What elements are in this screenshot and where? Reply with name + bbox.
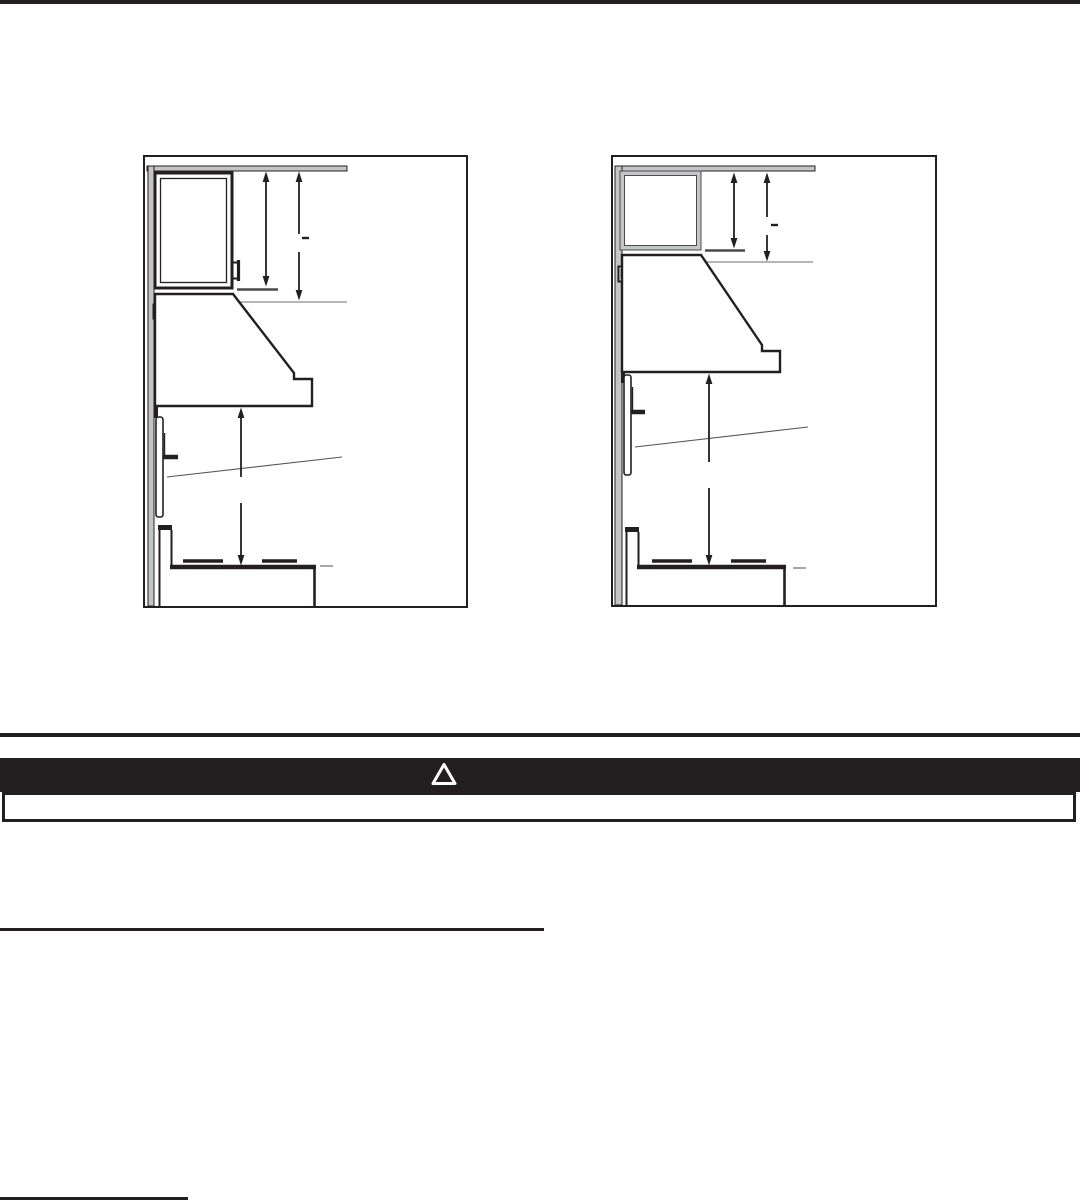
ceiling-section [615,166,815,171]
leader-line [635,427,808,447]
wall-cabinet [620,171,701,250]
dimension-arrow-ceiling-to-cabinet [731,173,738,249]
paragraph-underline-rule [0,928,544,931]
dimension-arrow-ceiling-to-cabinet [263,172,270,287]
wall-cabinet [155,173,239,288]
range-hood-profile [155,294,312,406]
range-cooktop [158,525,333,607]
page-top-bar [0,0,1080,4]
range-backguard [156,417,163,517]
backguard-bracket [163,433,178,457]
footnote-rule [0,1197,188,1200]
wall-section [148,166,154,606]
right-installation-diagram [611,155,937,607]
ceiling-section [147,166,347,171]
range-backguard [624,375,631,475]
dimension-arrow-hood-to-cooktop [238,408,245,566]
backguard-bracket [631,387,645,412]
left-installation-diagram [143,155,468,608]
range-hood-profile [622,255,780,372]
warning-statement-box [2,792,1076,822]
manual-page [0,0,1080,1201]
dimension-arrow-ceiling-to-hood [764,173,778,262]
dimension-arrow-hood-to-cooktop [706,374,713,566]
leader-line [167,457,342,477]
warning-banner [0,758,1080,792]
warning-triangle-icon [431,762,457,786]
section-divider-rule [0,733,1080,737]
range-cooktop [625,527,806,606]
dimension-arrow-ceiling-to-hood [296,172,309,301]
